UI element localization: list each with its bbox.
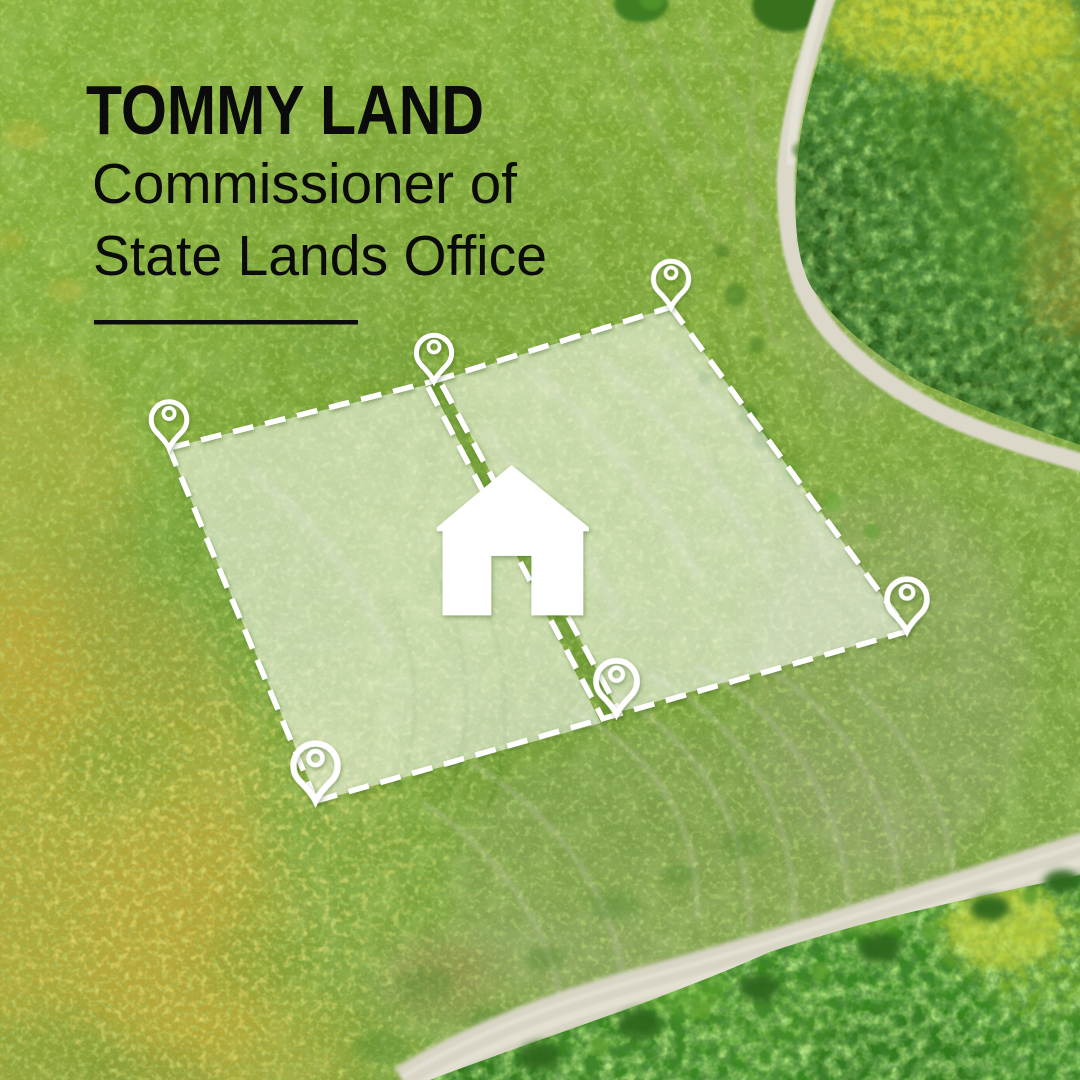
svg-text:State Lands Office: State Lands Office	[93, 224, 547, 288]
svg-text:Commissioner of: Commissioner of	[92, 152, 517, 216]
svg-text:TOMMY LAND: TOMMY LAND	[86, 71, 484, 149]
